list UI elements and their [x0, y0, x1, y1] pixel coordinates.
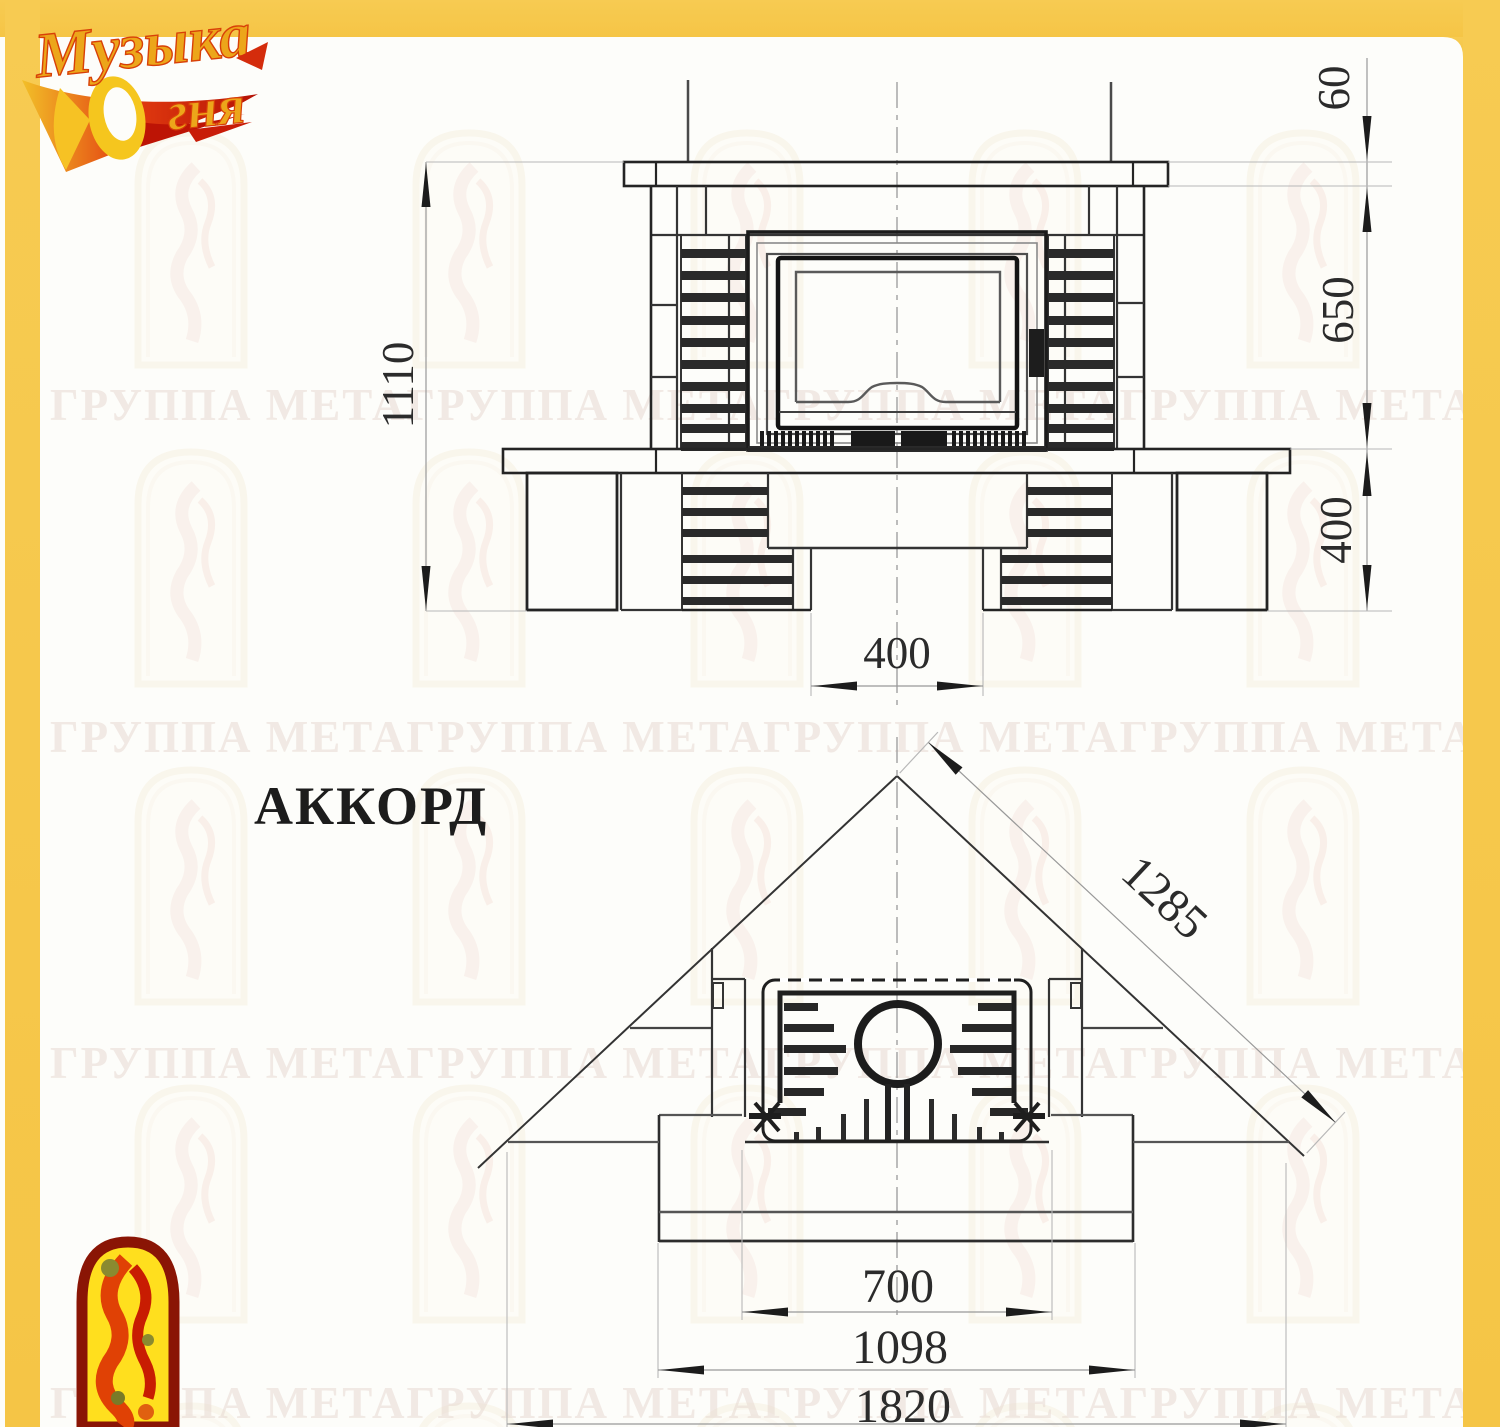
svg-text:АККОРД: АККОРД	[254, 776, 488, 836]
svg-text:1098: 1098	[852, 1321, 948, 1374]
svg-text:ГРУППА МЕТАГРУППА МЕТАГРУППА М: ГРУППА МЕТАГРУППА МЕТАГРУППА МЕТАГРУППА …	[50, 1378, 1476, 1427]
svg-text:1110: 1110	[373, 342, 423, 429]
svg-text:650: 650	[1313, 276, 1363, 344]
svg-text:60: 60	[1309, 66, 1359, 111]
svg-text:400: 400	[1311, 496, 1361, 564]
svg-text:ГРУППА МЕТАГРУППА МЕТАГРУППА М: ГРУППА МЕТАГРУППА МЕТАГРУППА МЕТАГРУППА …	[50, 712, 1476, 762]
svg-text:700: 700	[862, 1260, 934, 1313]
svg-text:400: 400	[863, 628, 931, 678]
svg-text:ГРУППА МЕТАГРУППА МЕТАГРУППА М: ГРУППА МЕТАГРУППА МЕТАГРУППА МЕТАГРУППА …	[50, 380, 1476, 430]
svg-text:1820: 1820	[855, 1380, 951, 1427]
svg-text:1285: 1285	[1111, 846, 1217, 950]
